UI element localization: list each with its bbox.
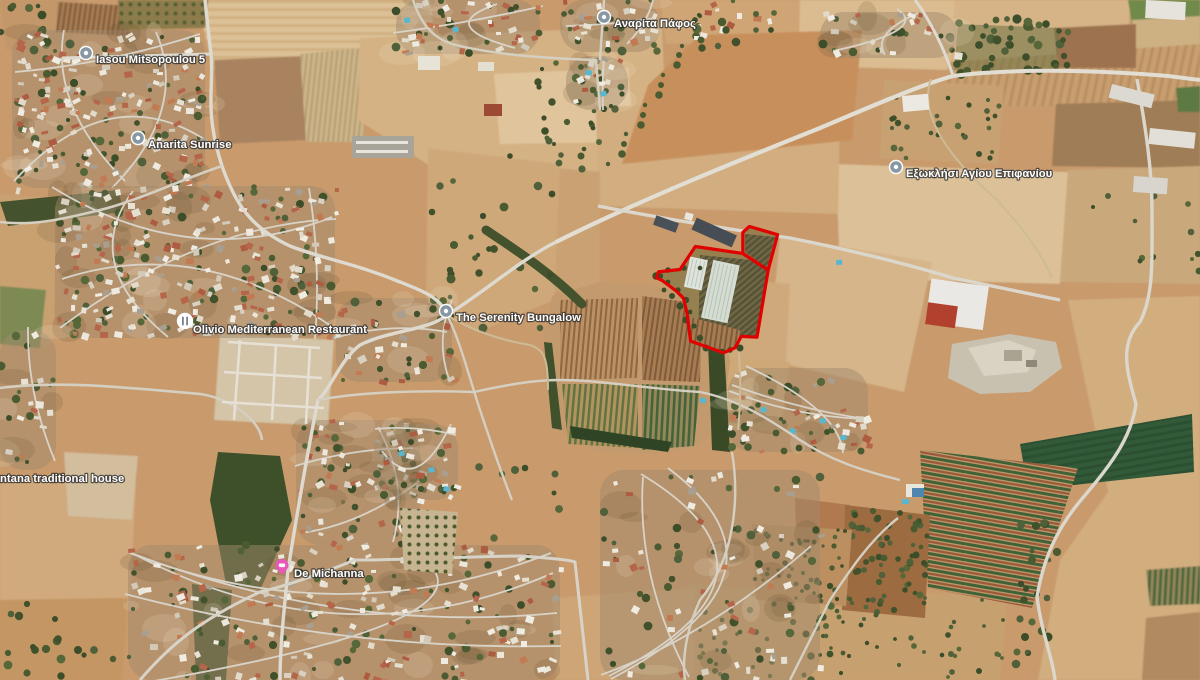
svg-text:ntana traditional house: ntana traditional house — [0, 473, 124, 485]
svg-text:Olivio Mediterranean Restauran: Olivio Mediterranean Restaurant — [193, 324, 367, 336]
svg-text:Iasou Mitsopoulou 5: Iasou Mitsopoulou 5 — [96, 54, 205, 66]
svg-text:Εξωκλήσι Αγίου Επιφανίου: Εξωκλήσι Αγίου Επιφανίου — [906, 168, 1053, 180]
svg-text:Anarita Sunrise: Anarita Sunrise — [148, 139, 232, 151]
svg-text:The Serenity Bungalow: The Serenity Bungalow — [456, 312, 581, 324]
svg-text:De Michanna: De Michanna — [294, 568, 364, 580]
svg-text:Αναρίτα Πάφος: Αναρίτα Πάφος — [614, 18, 696, 30]
